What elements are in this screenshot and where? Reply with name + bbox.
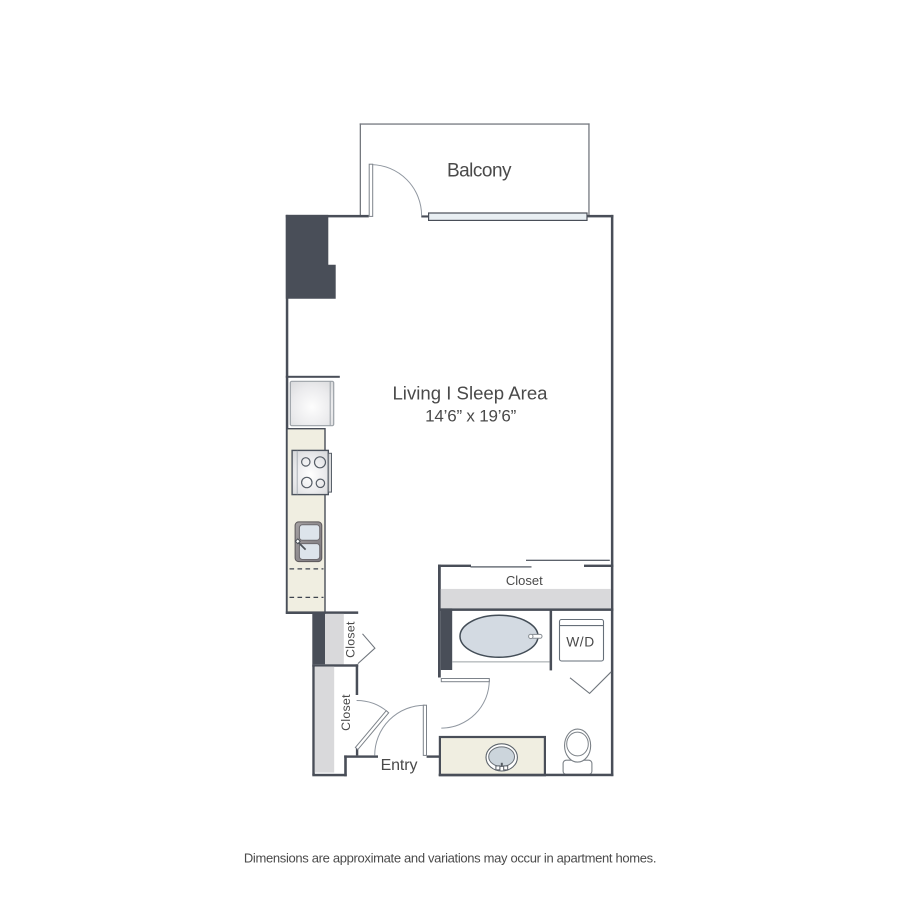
svg-text:Balcony: Balcony [447,160,512,181]
svg-text:Living I Sleep Area: Living I Sleep Area [392,382,548,403]
svg-text:Dimensions are approximate and: Dimensions are approximate and variation… [244,851,656,866]
svg-text:14’6” x 19’6”: 14’6” x 19’6” [425,407,516,426]
svg-text:Closet: Closet [506,573,543,588]
svg-text:W/D: W/D [566,634,595,649]
svg-text:Closet: Closet [339,694,353,731]
svg-text:Entry: Entry [381,757,418,774]
svg-text:Closet: Closet [344,621,358,658]
